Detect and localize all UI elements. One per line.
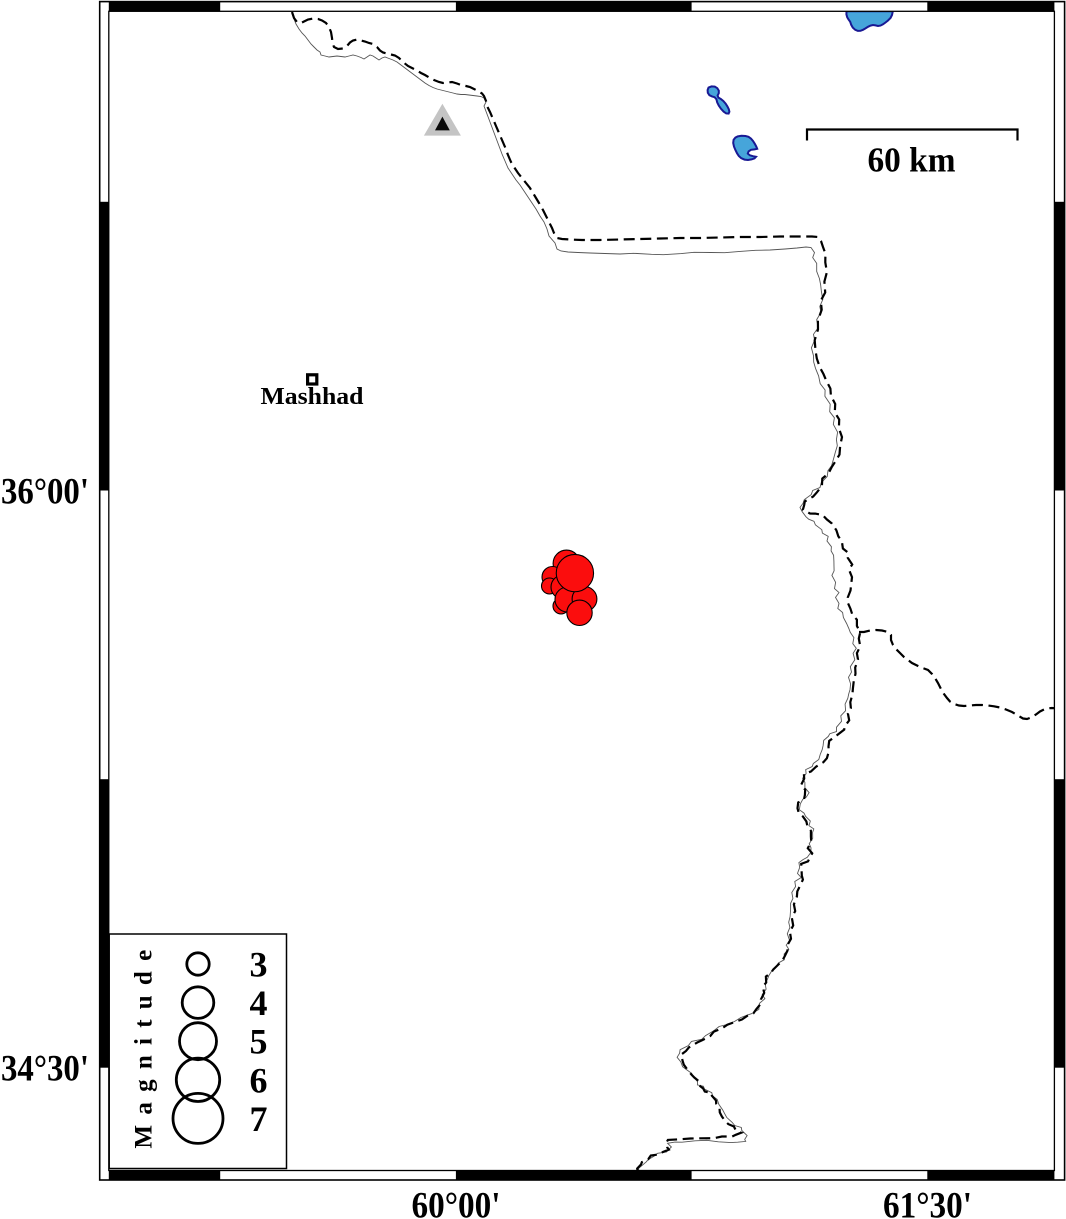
svg-text:Mashhad: Mashhad [261,384,365,410]
svg-text:36°00': 36°00' [1,471,89,512]
svg-text:60 km: 60 km [868,141,956,180]
svg-text:4: 4 [250,983,268,1023]
svg-text:Magnitude: Magnitude [131,940,158,1149]
svg-text:34°30': 34°30' [1,1048,89,1089]
svg-text:60°00': 60°00' [412,1185,501,1219]
svg-text:5: 5 [250,1022,268,1062]
svg-text:61°30': 61°30' [883,1185,972,1219]
svg-text:7: 7 [250,1099,268,1139]
svg-text:6: 6 [250,1060,268,1100]
svg-text:3: 3 [250,945,268,985]
